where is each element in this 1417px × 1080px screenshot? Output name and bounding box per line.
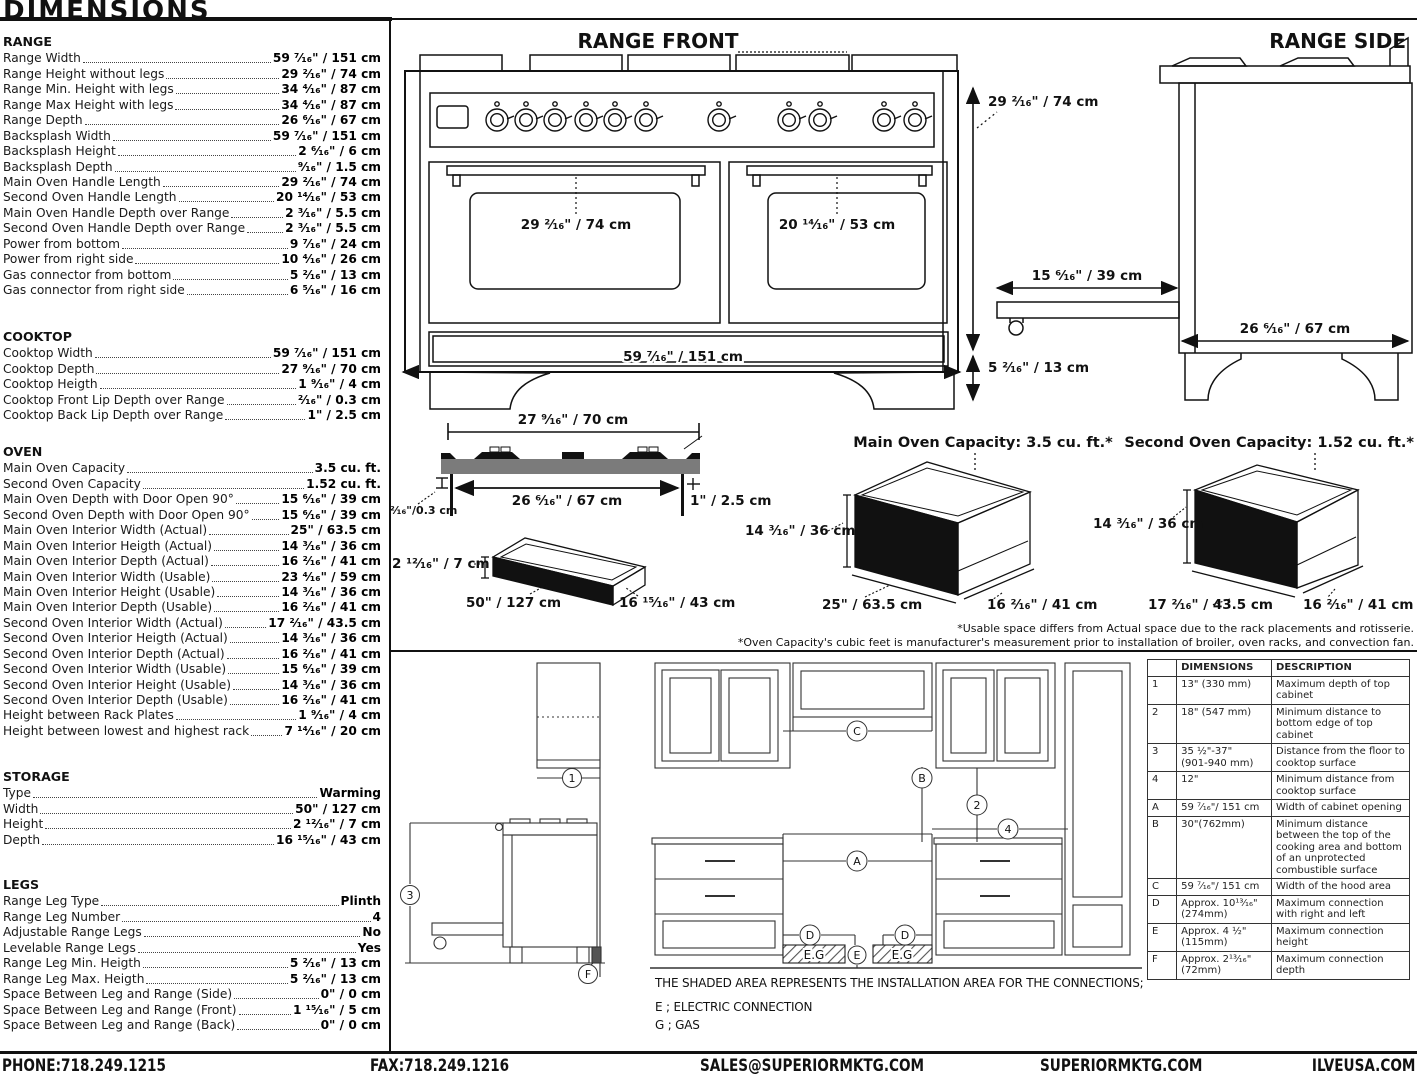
range-height-dim: 29 ²⁄₁₆" / 74 cm	[988, 94, 1098, 110]
install-table-cell-dim: Approx. 2¹³⁄₁₆" (72mm)	[1177, 951, 1272, 979]
spec-section-heading: OVEN	[3, 444, 381, 460]
spec-label: Main Oven Capacity	[3, 461, 125, 475]
spec-value: 23 ⁴⁄₁₆" / 59 cm	[281, 570, 381, 584]
spec-label: Main Oven Interior Height (Usable)	[3, 585, 215, 599]
install-table-cell-ref: 2	[1148, 704, 1177, 744]
dotted-leader	[40, 813, 293, 814]
install-table-row: 218" (547 mm)Minimum distance to bottom …	[1148, 704, 1410, 744]
spec-label: Main Oven Interior Width (Usable)	[3, 570, 210, 584]
spec-row: Height between Rack Plates1 ⁹⁄₁₆" / 4 cm	[3, 707, 381, 722]
main-oven-title: Main Oven Capacity: 3.5 cu. ft.*	[853, 435, 1113, 451]
install-elevation: C B 2 4 A D D E E.G E.G	[650, 655, 1145, 990]
spec-row: Range Leg Max. Heigth5 ²⁄₁₆" / 13 cm	[3, 970, 381, 985]
spec-value: 14 ³⁄₁₆" / 36 cm	[281, 631, 381, 645]
spec-row: Second Oven Handle Length20 ¹⁴⁄₁₆" / 53 …	[3, 189, 381, 204]
spec-label: Second Oven Interior Depth (Actual)	[3, 647, 225, 661]
install-table-cell-ref: D	[1148, 895, 1177, 923]
cooktop-width-dim: 27 ⁹⁄₁₆" / 70 cm	[518, 412, 628, 428]
spec-label: Backsplash Height	[3, 144, 116, 158]
spec-row: Second Oven Interior Width (Actual)17 ²⁄…	[3, 614, 381, 629]
install-table-row: EApprox. 4 ½" (115mm)Maximum connection …	[1148, 923, 1410, 951]
install-table-cell-desc: Maximum depth of top cabinet	[1272, 676, 1410, 704]
spec-label: Range Max Height with legs	[3, 98, 173, 112]
dotted-leader	[127, 472, 312, 473]
spec-value: 2 ⁶⁄₁₆" / 6 cm	[298, 144, 381, 158]
top-rule	[390, 18, 1417, 20]
spec-row: Power from right side10 ⁴⁄₁₆" / 26 cm	[3, 251, 381, 266]
second-oven-height-dim: 14 ³⁄₁₆" / 36 cm	[1093, 516, 1203, 532]
dotted-leader	[135, 263, 279, 264]
spec-label: Range Depth	[3, 113, 83, 127]
install-table-row: 412"Minimum distance from cooktop surfac…	[1148, 772, 1410, 800]
dotted-leader	[95, 357, 271, 358]
spec-row: Range Min. Height with legs34 ⁴⁄₁₆" / 87…	[3, 81, 381, 96]
spec-label: Second Oven Interior Height (Usable)	[3, 678, 231, 692]
spec-value: 4	[373, 910, 381, 924]
spec-row: Cooktop Front Lip Depth over Range²⁄₁₆" …	[3, 391, 381, 406]
install-table-row: 113" (330 mm)Maximum depth of top cabine…	[1148, 676, 1410, 704]
spec-section-legs: LEGSRange Leg TypePlinthRange Leg Number…	[3, 877, 381, 1032]
spec-row: TypeWarming	[3, 785, 381, 800]
install-table-cell-dim: Approx. 4 ½" (115mm)	[1177, 923, 1272, 951]
range-side-drawing: RANGE SIDE 29 ²⁄₁₆" / 74 cm 5 ²⁄₁₆" / 13…	[950, 22, 1417, 414]
callout-d-left: D	[806, 929, 814, 942]
dotted-leader	[143, 488, 304, 489]
spec-row: Range Leg Number4	[3, 908, 381, 923]
spec-value: 34 ⁴⁄₁₆" / 87 cm	[281, 82, 381, 96]
spec-value: 20 ¹⁴⁄₁₆" / 53 cm	[276, 190, 381, 204]
spec-row: Height2 ¹²⁄₁₆" / 7 cm	[3, 816, 381, 831]
spec-row: Cooktop Back Lip Depth over Range1" / 2.…	[3, 407, 381, 422]
spec-row: Backsplash Depth⁹⁄₁₆" / 1.5 cm	[3, 158, 381, 173]
install-table-cell-ref: 4	[1148, 772, 1177, 800]
spec-section-heading: LEGS	[3, 877, 381, 893]
note-gas: G ; GAS	[655, 1018, 700, 1032]
spec-label: Cooktop Heigth	[3, 377, 98, 391]
dotted-leader	[122, 248, 288, 249]
dotted-leader	[83, 62, 271, 63]
spec-value: 7 ¹⁴⁄₁₆" / 20 cm	[284, 724, 381, 738]
dotted-leader	[138, 952, 356, 953]
back-lip-bracket	[687, 478, 700, 490]
install-table-cell-ref: C	[1148, 879, 1177, 896]
spec-row: Range Max Height with legs34 ⁴⁄₁₆" / 87 …	[3, 96, 381, 111]
spec-label: Main Oven Interior Depth (Actual)	[3, 554, 209, 568]
spec-value: 16 ²⁄₁₆" / 41 cm	[281, 647, 381, 661]
spec-label: Gas connector from right side	[3, 283, 185, 297]
dotted-leader	[144, 936, 361, 937]
front-lip-bracket	[418, 478, 448, 504]
install-table-header-dimensions: DIMENSIONS	[1177, 660, 1272, 677]
spec-value: 15 ⁶⁄₁₆" / 39 cm	[281, 662, 381, 676]
spec-row: Range Height without legs29 ²⁄₁₆" / 74 c…	[3, 65, 381, 80]
spec-value: 14 ³⁄₁₆" / 36 cm	[281, 585, 381, 599]
dotted-leader	[101, 905, 338, 906]
install-table-cell-ref: 1	[1148, 676, 1177, 704]
spec-label: Main Oven Handle Length	[3, 175, 161, 189]
spec-row: Second Oven Interior Height (Usable)14 ³…	[3, 676, 381, 691]
callout-c: C	[853, 725, 861, 738]
spec-value: ²⁄₁₆" / 0.3 cm	[298, 393, 381, 407]
install-table-header-ref	[1148, 660, 1177, 677]
dotted-leader	[239, 1014, 291, 1015]
spec-label: Power from bottom	[3, 237, 120, 251]
dotted-leader	[187, 294, 288, 295]
spec-value: 3.5 cu. ft.	[315, 461, 381, 475]
cooktop-and-storage-drawing: 27 ⁹⁄₁₆" / 70 cm 26 ⁶⁄₁₆" / 67 cm ²⁄₁₆"/…	[390, 408, 780, 625]
spec-row: Gas connector from right side6 ⁵⁄₁₆" / 1…	[3, 282, 381, 297]
storage-depth-dim: 16 ¹⁵⁄₁₆" / 43 cm	[619, 595, 735, 611]
main-oven-width-dim: 25" / 63.5 cm	[822, 597, 922, 613]
spec-value: 34 ⁴⁄₁₆" / 87 cm	[281, 98, 381, 112]
spec-row: Second Oven Capacity1.52 cu. ft.	[3, 475, 381, 490]
spec-value: 5 ²⁄₁₆" / 13 cm	[290, 268, 381, 282]
drawer-depth-dim: 15 ⁶⁄₁₆" / 39 cm	[1032, 268, 1142, 284]
spec-label: Cooktop Width	[3, 346, 93, 360]
main-oven-depth-dim: 16 ²⁄₁₆" / 41 cm	[987, 597, 1097, 613]
install-table-header-row: DIMENSIONS DESCRIPTION	[1148, 660, 1410, 677]
spec-value: Warming	[319, 786, 381, 800]
install-side-lines	[405, 663, 605, 977]
spec-value: 0" / 0 cm	[321, 987, 381, 1001]
spec-value: 6 ⁵⁄₁₆" / 16 cm	[290, 283, 381, 297]
dotted-leader	[115, 171, 296, 172]
install-table-cell-dim: 30"(762mm)	[1177, 816, 1272, 879]
install-table-header-description: DESCRIPTION	[1272, 660, 1410, 677]
spec-row: Height between lowest and highest rack7 …	[3, 722, 381, 737]
install-table-cell-ref: B	[1148, 816, 1177, 879]
range-side-outline	[997, 38, 1412, 400]
dotted-leader	[214, 550, 279, 551]
dotted-leader	[100, 388, 297, 389]
spec-value: 17 ²⁄₁₆" / 43.5 cm	[268, 616, 381, 630]
spec-value: 27 ⁹⁄₁₆" / 70 cm	[281, 362, 381, 376]
dimensions-spec-sheet: { "page": { "title": "DIMENSIONS" }, "sp…	[0, 0, 1417, 1080]
install-table: DIMENSIONS DESCRIPTION 113" (330 mm)Maxi…	[1147, 659, 1410, 980]
install-table-cell-desc: Maximum connection depth	[1272, 951, 1410, 979]
dotted-leader	[166, 78, 279, 79]
second-oven-title: Second Oven Capacity: 1.52 cu. ft.*	[1124, 435, 1414, 451]
dotted-leader	[122, 921, 370, 922]
spec-value: 29 ²⁄₁₆" / 74 cm	[281, 67, 381, 81]
spec-row: Main Oven Interior Width (Actual)25" / 6…	[3, 522, 381, 537]
dotted-leader	[247, 232, 283, 233]
dotted-leader	[113, 140, 271, 141]
dotted-leader	[217, 596, 279, 597]
footer-fax: FAX:718.249.1216	[370, 1056, 544, 1076]
spec-row: Adjustable Range LegsNo	[3, 924, 381, 939]
spec-value: 16 ¹⁵⁄₁₆" / 43 cm	[276, 833, 381, 847]
spec-label: Space Between Leg and Range (Front)	[3, 1003, 237, 1017]
install-table-cell-desc: Minimum distance between the top of the …	[1272, 816, 1410, 879]
second-handle-dim: 20 ¹⁴⁄₁₆" / 53 cm	[779, 217, 895, 233]
footer-brand: ILVEUSA.COM	[1286, 1056, 1415, 1076]
footnotes: *Usable space differs from Actual space …	[404, 622, 1414, 649]
dotted-leader	[227, 658, 280, 659]
spec-section-cooktop: COOKTOPCooktop Width59 ⁷⁄₁₆" / 151 cmCoo…	[3, 329, 381, 422]
spec-row: Range Leg TypePlinth	[3, 893, 381, 908]
dotted-leader	[234, 998, 319, 999]
spec-row: Main Oven Interior Width (Usable)23 ⁴⁄₁₆…	[3, 568, 381, 583]
spec-row: Space Between Leg and Range (Side)0" / 0…	[3, 986, 381, 1001]
spec-value: 15 ⁶⁄₁₆" / 39 cm	[281, 508, 381, 522]
eg-label-right: E.G	[892, 948, 913, 962]
spec-label: Depth	[3, 833, 40, 847]
spec-value: 5 ²⁄₁₆" / 13 cm	[290, 972, 381, 986]
spec-label: Second Oven Handle Depth over Range	[3, 221, 245, 235]
second-oven-capacity-drawing: Second Oven Capacity: 1.52 cu. ft.* 14 ³…	[1090, 425, 1417, 620]
spec-label: Type	[3, 786, 31, 800]
spec-value: 16 ²⁄₁₆" / 41 cm	[281, 554, 381, 568]
spec-label: Range Leg Number	[3, 910, 120, 924]
spec-value: 25" / 63.5 cm	[291, 523, 381, 537]
spec-label: Second Oven Interior Width (Actual)	[3, 616, 223, 630]
dotted-leader	[179, 201, 274, 202]
dotted-leader	[143, 967, 288, 968]
callout-a: A	[853, 855, 861, 868]
spec-label: Range Leg Max. Heigth	[3, 972, 144, 986]
spec-row: Main Oven Depth with Door Open 90°15 ⁶⁄₁…	[3, 491, 381, 506]
storage-width-dim: 50" / 127 cm	[466, 595, 561, 611]
note-shaded-area: THE SHADED AREA REPRESENTS THE INSTALLAT…	[655, 976, 1143, 990]
spec-label: Main Oven Interior Depth (Usable)	[3, 600, 212, 614]
dotted-leader	[173, 279, 287, 280]
install-table-cell-desc: Width of the hood area	[1272, 879, 1410, 896]
dotted-leader	[85, 124, 280, 125]
spec-row: Main Oven Interior Heigth (Actual)14 ³⁄₁…	[3, 537, 381, 552]
spec-value: 14 ³⁄₁₆" / 36 cm	[281, 678, 381, 692]
dotted-leader	[209, 534, 288, 535]
spec-label: Space Between Leg and Range (Side)	[3, 987, 232, 1001]
spec-row: Range Depth26 ⁶⁄₁₆" / 67 cm	[3, 112, 381, 127]
spec-label: Range Width	[3, 51, 81, 65]
spec-row: Depth16 ¹⁵⁄₁₆" / 43 cm	[3, 831, 381, 846]
spec-label: Backsplash Width	[3, 129, 111, 143]
main-oven-height-dim: 14 ³⁄₁₆" / 36 cm	[745, 523, 855, 539]
install-table-cell-dim: 59 ⁷⁄₁₆"/ 151 cm	[1177, 800, 1272, 817]
install-table-row: 335 ½"-37" (901-940 mm)Distance from the…	[1148, 744, 1410, 772]
front-lip-dim: ²⁄₁₆"/0.3 cm	[390, 504, 457, 517]
main-oven-capacity-drawing: Main Oven Capacity: 3.5 cu. ft.* 14 ³⁄₁₆…	[740, 425, 1120, 620]
spec-row: Main Oven Handle Depth over Range2 ³⁄₁₆"…	[3, 204, 381, 219]
callout-2: 2	[974, 799, 981, 812]
spec-label: Main Oven Interior Heigth (Actual)	[3, 539, 212, 553]
dotted-leader	[237, 1029, 318, 1030]
note-electric: E ; ELECTRIC CONNECTION	[655, 1000, 812, 1014]
spec-value: 59 ⁷⁄₁₆" / 151 cm	[273, 346, 381, 360]
spec-row: Backsplash Height2 ⁶⁄₁₆" / 6 cm	[3, 143, 381, 158]
range-front-title: RANGE FRONT	[577, 29, 738, 53]
spec-row: Second Oven Interior Depth (Usable)16 ²⁄…	[3, 692, 381, 707]
spec-value: 1 ¹⁵⁄₁₆" / 5 cm	[293, 1003, 381, 1017]
dotted-leader	[176, 93, 280, 94]
spec-value: 10 ⁴⁄₁₆" / 26 cm	[281, 252, 381, 266]
install-table-cell-desc: Minimum distance from cooktop surface	[1272, 772, 1410, 800]
spec-value: 26 ⁶⁄₁₆" / 67 cm	[281, 113, 381, 127]
second-oven-depth-dim: 16 ²⁄₁₆" / 41 cm	[1303, 597, 1413, 613]
spec-row: Cooktop Depth27 ⁹⁄₁₆" / 70 cm	[3, 360, 381, 375]
dotted-leader	[230, 704, 280, 705]
range-front-drawing: RANGE FRONT 29 ²⁄₁₆" / 74 cm 20 ¹⁴⁄₁₆" /…	[400, 22, 965, 414]
spec-label: Range Leg Type	[3, 894, 99, 908]
dotted-leader	[212, 581, 279, 582]
eg-label-left: E.G	[804, 948, 825, 962]
spec-row: Range Leg Min. Heigth5 ²⁄₁₆" / 13 cm	[3, 955, 381, 970]
spec-row: Main Oven Interior Depth (Usable)16 ²⁄₁₆…	[3, 599, 381, 614]
spec-value: Yes	[358, 941, 381, 955]
dotted-leader	[146, 983, 287, 984]
dotted-leader	[236, 503, 280, 504]
install-elevation-callouts: C B 2 4 A D D E E.G E.G	[800, 721, 1018, 964]
spec-value: Plinth	[341, 894, 381, 908]
footer-site: SUPERIORMKTG.COM	[1040, 1056, 1243, 1076]
spec-column: RANGERange Width59 ⁷⁄₁₆" / 151 cmRange H…	[3, 0, 383, 1050]
range-front-knobs	[486, 102, 932, 131]
spec-label: Range Height without legs	[3, 67, 164, 81]
spec-label: Height between Rack Plates	[3, 708, 174, 722]
install-table-cell-ref: 3	[1148, 744, 1177, 772]
main-oven-box	[828, 453, 1034, 603]
storage-height-dim: 2 ¹²⁄₁₆" / 7 cm	[392, 556, 490, 572]
leg-height-dim: 5 ²⁄₁₆" / 13 cm	[988, 360, 1089, 376]
spec-row: Main Oven Handle Length29 ²⁄₁₆" / 74 cm	[3, 174, 381, 189]
spec-row: Main Oven Capacity3.5 cu. ft.	[3, 460, 381, 475]
spec-row: Levelable Range LegsYes	[3, 939, 381, 954]
spec-value: 2 ¹²⁄₁₆" / 7 cm	[293, 817, 381, 831]
spec-label: Adjustable Range Legs	[3, 925, 142, 939]
install-table-cell-ref: F	[1148, 951, 1177, 979]
spec-value: 50" / 127 cm	[295, 802, 381, 816]
spec-value: 16 ²⁄₁₆" / 41 cm	[281, 600, 381, 614]
spec-value: 16 ²⁄₁₆" / 41 cm	[281, 693, 381, 707]
spec-label: Main Oven Depth with Door Open 90°	[3, 492, 234, 506]
spec-value: 1.52 cu. ft.	[306, 477, 381, 491]
spec-section-heading: STORAGE	[3, 769, 381, 785]
spec-row: Range Width59 ⁷⁄₁₆" / 151 cm	[3, 50, 381, 65]
dotted-leader	[252, 519, 280, 520]
spec-value: 29 ²⁄₁₆" / 74 cm	[281, 175, 381, 189]
dotted-leader	[211, 565, 279, 566]
dotted-leader	[214, 611, 279, 612]
callout-f: F	[585, 968, 591, 981]
range-side-title: RANGE SIDE	[1269, 29, 1406, 53]
install-table-cell-desc: Maximum connection with right and left	[1272, 895, 1410, 923]
footer-rule	[0, 1051, 1417, 1054]
dotted-leader	[231, 217, 283, 218]
install-elevation-lines	[650, 663, 1142, 968]
spec-value: 2 ³⁄₁₆" / 5.5 cm	[285, 221, 381, 235]
install-table-cell-desc: Minimum distance to bottom edge of top c…	[1272, 704, 1410, 744]
install-table-row: FApprox. 2¹³⁄₁₆" (72mm)Maximum connectio…	[1148, 951, 1410, 979]
spec-value: 59 ⁷⁄₁₆" / 151 cm	[273, 51, 381, 65]
install-table-cell-ref: E	[1148, 923, 1177, 951]
install-table-cell-desc: Maximum connection height	[1272, 923, 1410, 951]
install-table-cell-dim: 18" (547 mm)	[1177, 704, 1272, 744]
dotted-leader	[45, 828, 291, 829]
spec-label: Second Oven Interior Depth (Usable)	[3, 693, 228, 707]
install-table-cell-ref: A	[1148, 800, 1177, 817]
range-depth-dim: 26 ⁶⁄₁₆" / 67 cm	[1240, 321, 1350, 337]
spec-value: ⁹⁄₁₆" / 1.5 cm	[298, 160, 381, 174]
spec-section-oven: OVENMain Oven Capacity3.5 cu. ft.Second …	[3, 444, 381, 738]
dotted-leader	[175, 109, 279, 110]
spec-row: Main Oven Interior Depth (Actual)16 ²⁄₁₆…	[3, 553, 381, 568]
spec-value: 5 ²⁄₁₆" / 13 cm	[290, 956, 381, 970]
height-leader	[977, 112, 997, 128]
install-side-view: 1 3 F	[395, 655, 650, 1050]
install-table-cell-desc: Distance from the floor to cooktop surfa…	[1272, 744, 1410, 772]
dotted-leader	[42, 844, 274, 845]
dotted-leader	[251, 735, 282, 736]
spec-row: Space Between Leg and Range (Back)0" / 0…	[3, 1017, 381, 1032]
install-table-row: C59 ⁷⁄₁₆"/ 151 cmWidth of the hood area	[1148, 879, 1410, 896]
spec-row: Backsplash Width59 ⁷⁄₁₆" / 151 cm	[3, 127, 381, 142]
install-table-row: A59 ⁷⁄₁₆"/ 151 cmWidth of cabinet openin…	[1148, 800, 1410, 817]
spec-value: 1 ⁹⁄₁₆" / 4 cm	[298, 377, 381, 391]
spec-label: Height	[3, 817, 43, 831]
spec-label: Cooktop Front Lip Depth over Range	[3, 393, 225, 407]
spec-label: Main Oven Handle Depth over Range	[3, 206, 229, 220]
spec-row: Cooktop Heigth1 ⁹⁄₁₆" / 4 cm	[3, 376, 381, 391]
install-table-cell-dim: 13" (330 mm)	[1177, 676, 1272, 704]
callout-4: 4	[1005, 823, 1012, 836]
dotted-leader	[227, 404, 296, 405]
callout-e: E	[854, 949, 861, 962]
footer-phone: PHONE:718.249.1215	[2, 1056, 207, 1076]
spec-label: Cooktop Depth	[3, 362, 94, 376]
install-table-cell-dim: Approx. 10¹³⁄₁₆" (274mm)	[1177, 895, 1272, 923]
spec-label: Main Oven Interior Width (Actual)	[3, 523, 207, 537]
spec-row: Power from bottom9 ⁷⁄₁₆" / 24 cm	[3, 235, 381, 250]
spec-row: Second Oven Handle Depth over Range2 ³⁄₁…	[3, 220, 381, 235]
range-width-dim: 59 ⁷⁄₁₆" / 151 cm	[623, 349, 743, 365]
install-table-row: B30"(762mm)Minimum distance between the …	[1148, 816, 1410, 879]
spec-value: 15 ⁶⁄₁₆" / 39 cm	[281, 492, 381, 506]
spec-value: 1" / 2.5 cm	[307, 408, 381, 422]
spec-row: Width50" / 127 cm	[3, 800, 381, 815]
cooktop-inner-dim: 26 ⁶⁄₁₆" / 67 cm	[512, 493, 622, 509]
spec-value: 9 ⁷⁄₁₆" / 24 cm	[290, 237, 381, 251]
spec-section-range: RANGERange Width59 ⁷⁄₁₆" / 151 cmRange H…	[3, 34, 381, 297]
dotted-leader	[176, 719, 296, 720]
main-handle-dim: 29 ²⁄₁₆" / 74 cm	[521, 217, 631, 233]
spec-row: Second Oven Interior Width (Usable)15 ⁶⁄…	[3, 661, 381, 676]
dotted-leader	[233, 689, 279, 690]
second-oven-width-dim: 17 ²⁄₁₆" / 43.5 cm	[1148, 597, 1273, 613]
spec-label: Range Leg Min. Heigth	[3, 956, 141, 970]
dotted-leader	[225, 627, 266, 628]
spec-value: No	[362, 925, 381, 939]
spec-section-heading: COOKTOP	[3, 329, 381, 345]
dotted-leader	[33, 797, 317, 798]
spec-row: Space Between Leg and Range (Front)1 ¹⁵⁄…	[3, 1001, 381, 1016]
dotted-leader	[228, 673, 279, 674]
install-side-callouts: 1 3 F	[401, 769, 598, 984]
spec-row: Cooktop Width59 ⁷⁄₁₆" / 151 cm	[3, 345, 381, 360]
spec-label: Cooktop Back Lip Depth over Range	[3, 408, 223, 422]
install-table-cell-desc: Width of cabinet opening	[1272, 800, 1410, 817]
dotted-leader	[96, 373, 279, 374]
dotted-leader	[118, 155, 297, 156]
install-table-cell-dim: 35 ½"-37" (901-940 mm)	[1177, 744, 1272, 772]
spec-value: 59 ⁷⁄₁₆" / 151 cm	[273, 129, 381, 143]
spec-label: Second Oven Capacity	[3, 477, 141, 491]
dotted-leader	[225, 419, 305, 420]
spec-label: Width	[3, 802, 38, 816]
footnote-usable: *Usable space differs from Actual space …	[404, 622, 1414, 636]
spec-label: Power from right side	[3, 252, 133, 266]
spec-label: Height between lowest and highest rack	[3, 724, 249, 738]
